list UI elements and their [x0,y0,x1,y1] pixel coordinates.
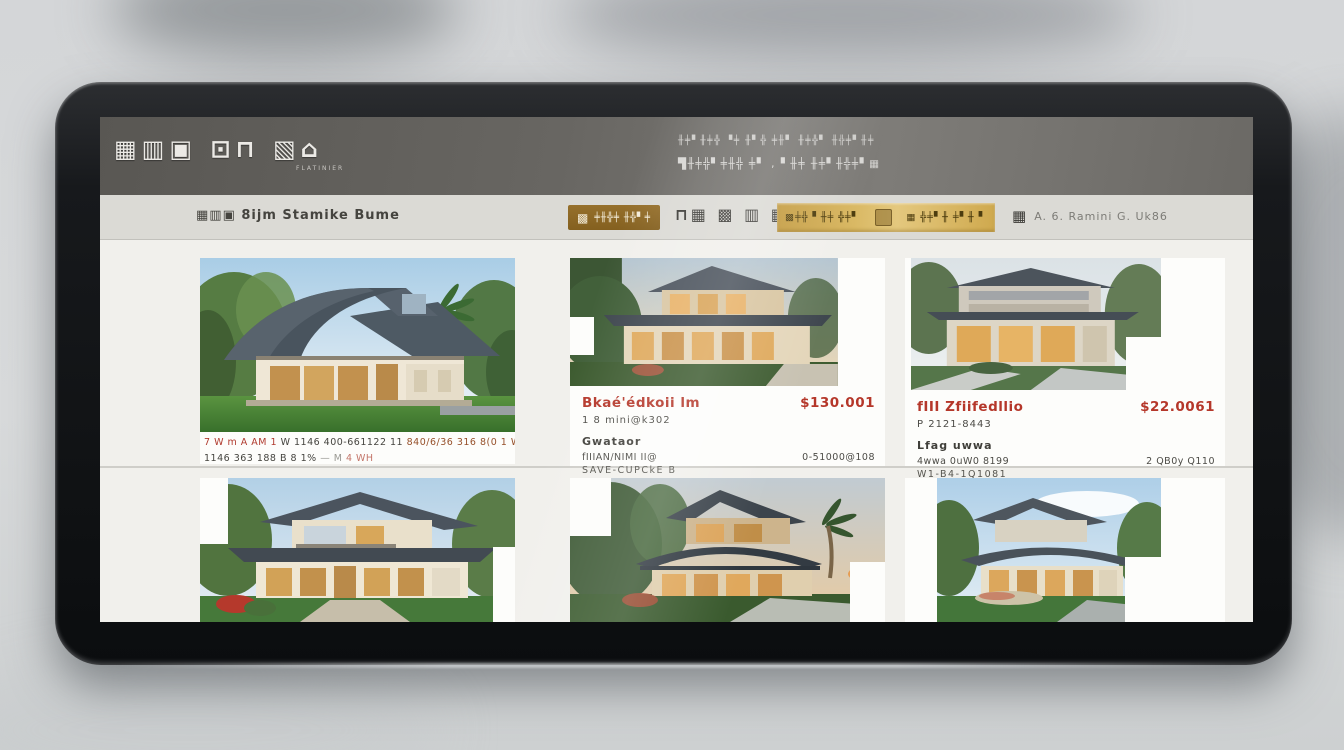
main-navbar: ▦▥▣ 8ijm Stamike Bume ▩ ╪╫╬╪ ╫╬▘╪ ⊓▦ ▩ ▥… [100,195,1253,240]
background-highlight [0,660,440,750]
photo-artifact [200,478,228,544]
photo-artifact [1126,337,1161,390]
promo-banner-right-text: ▦ ╬╪▘╫ ╪▘╫ ▘ [906,212,987,223]
listing-meta: fIII Zfiifedllio $22.0061 P 2121-8443 Lf… [905,390,1225,480]
site-header: ▦▥▣ ⊡⊓ ▧⌂ FLATINIER ╫╪▘╫╪╬ ▝╪ ╫▘╬ ╪╫▘ ╫╪… [100,117,1253,195]
listing-card-1[interactable]: 7 W m A AM 1 W 1146 400-661122 11 840/6/… [200,258,515,464]
nav-item-home[interactable]: ▦▥▣ 8ijm Stamike Bume [196,208,400,223]
photo-artifact [570,317,594,355]
listing-photo-5 [570,478,885,622]
listing-card-4[interactable] [200,478,515,622]
listing-label: Gwataor [582,435,875,448]
listing-caption-line2: 1146 363 188 B 8 1% — M 4 WH [200,448,515,464]
account-label: A. 6. Ramini G. Uk86 [1034,210,1168,223]
listing-photo-4 [200,478,515,622]
promo-banner[interactable]: ▩╪╬ ▘╫╪ ╬╪▘ ▦ ╬╪▘╫ ╪▘╫ ▘ [777,203,995,232]
listing-photo-6 [937,478,1161,622]
listing-spec: 1 8 mini@k302 [582,415,875,426]
account-menu[interactable]: ▦ A. 6. Ramini G. Uk86 [1012,207,1168,225]
promo-button-label: ╪╫╬╪ ╫╬▘╪ [594,213,651,223]
account-icon: ▦ [1012,207,1026,225]
listing-detail-right: 2 QB0y Q110 [1146,456,1215,467]
promo-icon: ▩ [577,211,589,225]
header-tagline-line2: ▜╫╪╬▘╪╫╬ ╪▘ , ▘╫╪ ╫╪▘╫╬╪▘▦ [678,152,978,176]
caption-segment: 7 W m A AM 1 [204,437,277,448]
promo-banner-left-text: ▩╪╬ ▘╫╪ ╬╪▘ [785,212,860,223]
house-illustration-two-story [200,478,515,622]
listing-detail-left: fIIIAN/NIMI II@ [582,452,657,463]
photo-artifact [493,547,515,622]
listing-card-3[interactable]: fIII Zfiifedllio $22.0061 P 2121-8443 Lf… [905,258,1225,466]
listing-card-2[interactable]: Bkaé'édkoii lm $130.001 1 8 mini@k302 Gw… [570,258,885,466]
photo-artifact [1125,557,1161,622]
house-illustration-day [200,258,515,432]
photo-artifact [850,562,885,622]
caption-segment: 1146 363 188 B 8 1% [204,453,317,464]
caption-segment: — M [320,453,342,464]
seal-icon [875,209,892,226]
listing-detail-left: 4wwa 0uW0 8199 [917,456,1009,467]
tablet-device: ▦▥▣ ⊡⊓ ▧⌂ FLATINIER ╫╪▘╫╪╬ ▝╪ ╫▘╬ ╪╫▘ ╫╪… [55,82,1292,665]
header-tagline-line1: ╫╪▘╫╪╬ ▝╪ ╫▘╬ ╪╫▘ ╫╪╬▘ ╫╬╪▘╫╪ [678,131,978,152]
listing-title: Bkaé'édkoii lm [582,395,700,411]
house-illustration-overcast [911,258,1161,390]
promo-button[interactable]: ▩ ╪╫╬╪ ╫╬▘╪ [568,205,660,230]
listing-caption-line1: 7 W m A AM 1 W 1146 400-661122 11 840/6/… [200,432,515,448]
listing-price: $130.001 [800,395,875,411]
caption-segment: 840/6/36 316 8(0 1 W 819/11 [407,437,515,448]
listing-meta: Bkaé'édkoii lm $130.001 1 8 mini@k302 Gw… [570,386,885,476]
background-shadow [560,0,1140,60]
caption-segment: W 1146 400-661122 11 [281,437,404,448]
caption-segment: 4 WH [346,453,374,464]
listings-grid: 7 W m A AM 1 W 1146 400-661122 11 840/6/… [100,240,1253,622]
listing-footer: SAVE-CUPCkE B [582,465,875,476]
house-illustration-dusk [570,258,838,386]
nav-item-categories[interactable]: ⊓▦ ▩ ▥ ▦ [675,205,789,224]
background-shadow [110,0,460,60]
listing-title: fIII Zfiifedllio [917,399,1023,415]
listing-price: $22.0061 [1140,399,1215,415]
listing-photo-2 [570,258,838,386]
listing-card-5[interactable] [570,478,885,622]
listing-spec: P 2121-8443 [917,419,1215,430]
desk-background: ▦▥▣ ⊡⊓ ▧⌂ FLATINIER ╫╪▘╫╪╬ ▝╪ ╫▘╬ ╪╫▘ ╫╪… [0,0,1344,750]
house-illustration-dusk-pavilion [570,478,885,622]
photo-artifact [570,478,611,536]
listing-photo-3 [911,258,1161,390]
site-logo[interactable]: ▦▥▣ ⊡⊓ ▧⌂ [114,135,323,163]
listing-label: Lfag uwwa [917,439,1215,452]
header-tagline: ╫╪▘╫╪╬ ▝╪ ╫▘╬ ╪╫▘ ╫╪╬▘ ╫╬╪▘╫╪ ▜╫╪╬▘╪╫╬ ╪… [678,131,978,176]
site-logo-subtext: FLATINIER [296,165,344,172]
screen: ▦▥▣ ⊡⊓ ▧⌂ FLATINIER ╫╪▘╫╪╬ ▝╪ ╫▘╬ ╪╫▘ ╫╪… [100,117,1253,622]
listing-card-6[interactable] [905,478,1225,622]
listing-detail-right: 0-51000@108 [802,452,875,463]
listing-photo-1 [200,258,515,432]
